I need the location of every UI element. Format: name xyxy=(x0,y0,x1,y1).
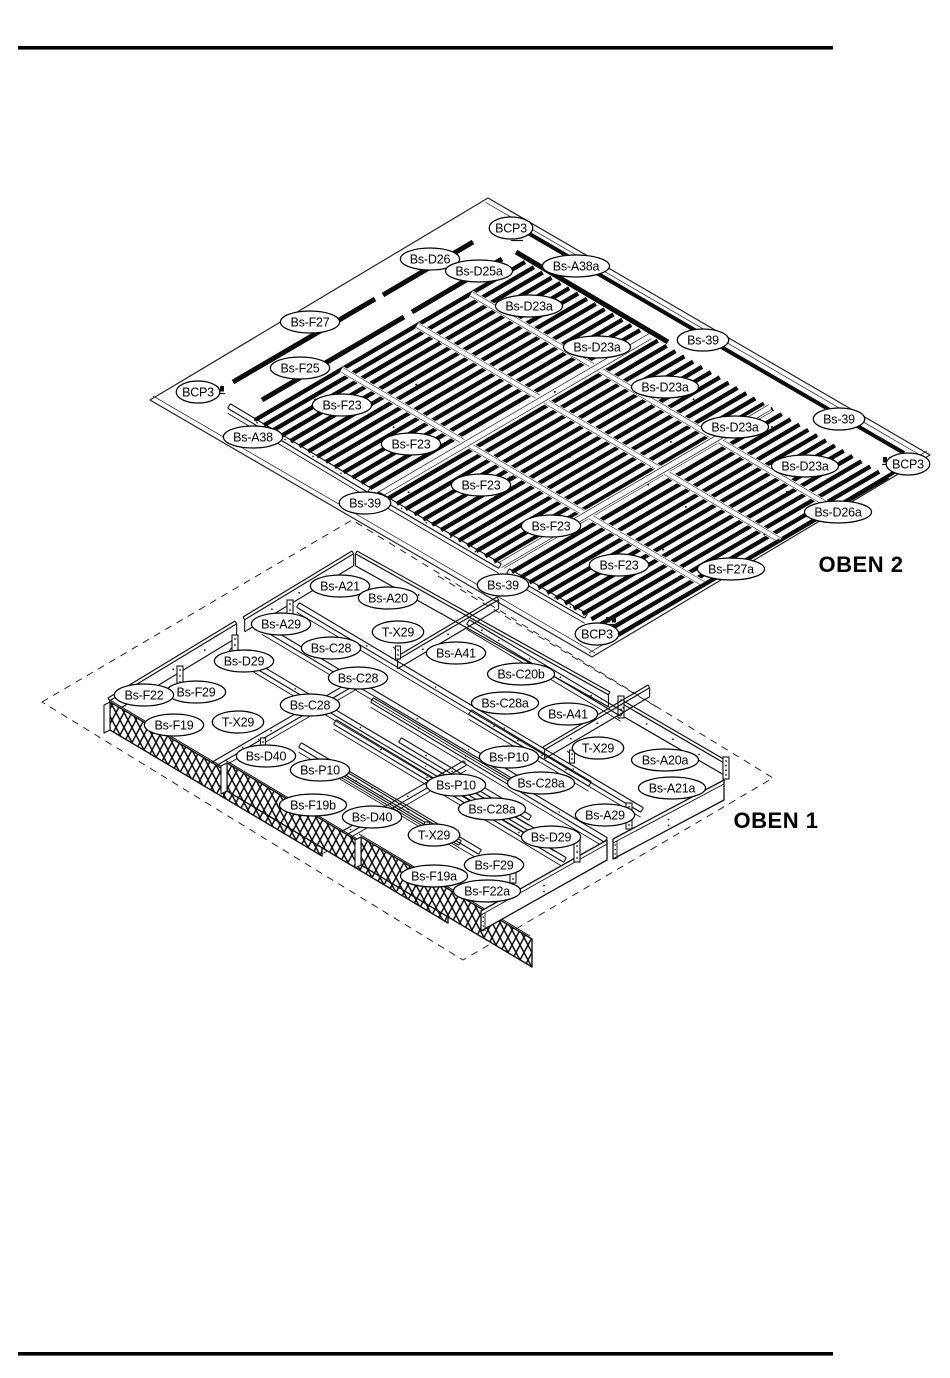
part-label-text: Bs-A29 xyxy=(261,617,301,631)
part-label-text: Bs-A20 xyxy=(368,591,408,605)
part-label: Bs-F23 xyxy=(312,394,371,416)
part-label: Bs-C28a xyxy=(472,692,539,714)
part-label-text: Bs-D23a xyxy=(505,299,552,313)
part-label: Bs-F27 xyxy=(280,311,339,333)
part-label: Bs-D25a xyxy=(446,260,513,282)
part-label: Bs-C28a xyxy=(508,772,575,794)
part-label-text: Bs-A38 xyxy=(233,430,273,444)
part-label: Bs-F25 xyxy=(270,357,329,379)
part-label-text: BCP3 xyxy=(495,221,527,235)
part-label: Bs-A41 xyxy=(538,703,597,725)
part-label: Bs-F29 xyxy=(464,854,523,876)
part-label: Bs-39 xyxy=(677,329,728,351)
part-label: T-X29 xyxy=(408,824,459,846)
assembly-diagram: BCP3Bs-D26Bs-D25aBs-A38aBs-D23aBs-F27Bs-… xyxy=(0,0,950,1378)
part-label-text: Bs-D23a xyxy=(641,380,688,394)
part-label-text: T-X29 xyxy=(222,715,255,729)
part-label-text: Bs-F23 xyxy=(599,558,638,572)
part-label: Bs-A38a xyxy=(543,255,610,277)
part-label: Bs-P10 xyxy=(479,746,538,768)
part-label: Bs-D29 xyxy=(521,826,580,848)
part-label-text: Bs-39 xyxy=(487,578,519,592)
part-label-text: Bs-39 xyxy=(687,333,719,347)
part-label: T-X29 xyxy=(212,711,263,733)
top-rule xyxy=(18,46,833,50)
part-label: Bs-D29 xyxy=(214,650,273,672)
part-label-text: Bs-F23 xyxy=(531,519,570,533)
part-label-text: BCP3 xyxy=(581,627,613,641)
part-label: Bs-P10 xyxy=(290,759,349,781)
part-label: Bs-P10 xyxy=(426,774,485,796)
part-label: Bs-A29 xyxy=(575,804,634,826)
part-label: BCP3 xyxy=(176,381,220,403)
part-label: Bs-F23 xyxy=(381,433,440,455)
part-label: Bs-A21a xyxy=(639,777,706,799)
part-label-text: Bs-D23a xyxy=(781,459,828,473)
part-label: Bs-A29 xyxy=(251,613,310,635)
part-label: Bs-D23a xyxy=(496,295,563,317)
part-label: Bs-A20 xyxy=(358,587,417,609)
part-label-text: Bs-F23 xyxy=(461,478,500,492)
part-label: Bs-D23a xyxy=(702,416,769,438)
manual-page: BCP3Bs-D26Bs-D25aBs-A38aBs-D23aBs-F27Bs-… xyxy=(0,0,950,1378)
part-label: Bs-F29 xyxy=(166,681,225,703)
part-label-text: Bs-F19b xyxy=(290,798,336,812)
part-label: Bs-39 xyxy=(813,408,864,430)
part-label-text: Bs-C28a xyxy=(481,696,528,710)
part-label: Bs-39 xyxy=(477,574,528,596)
part-label-text: Bs-F22 xyxy=(124,688,163,702)
part-label-text: Bs-A21 xyxy=(320,579,360,593)
part-label: Bs-A38 xyxy=(223,426,282,448)
part-label: Bs-F23 xyxy=(451,474,510,496)
part-label-text: T-X29 xyxy=(382,625,415,639)
part-label-text: BCP3 xyxy=(892,457,924,471)
part-label-text: Bs-39 xyxy=(349,496,381,510)
part-label-text: Bs-D29 xyxy=(224,654,265,668)
part-label-text: Bs-P10 xyxy=(300,763,340,777)
assembly-title-oben1: OBEN 1 xyxy=(734,808,819,833)
part-label: Bs-F22 xyxy=(114,684,173,706)
part-label: Bs-F23 xyxy=(589,554,648,576)
part-label-text: Bs-F22a xyxy=(464,884,510,898)
part-label-text: Bs-F19a xyxy=(411,869,457,883)
part-label-text: Bs-F23 xyxy=(322,398,361,412)
part-label-text: Bs-C28 xyxy=(338,671,379,685)
part-label: BCP3 xyxy=(886,453,930,475)
part-label: Bs-F19b xyxy=(280,794,347,816)
part-label-text: Bs-P10 xyxy=(436,778,476,792)
part-label-text: Bs-D26a xyxy=(814,505,861,519)
part-label-text: Bs-F25 xyxy=(280,361,319,375)
part-label-text: Bs-D23a xyxy=(573,340,620,354)
part-label-text: Bs-C28 xyxy=(311,641,352,655)
part-label: BCP3 xyxy=(489,217,533,239)
part-label-text: Bs-C20b xyxy=(497,667,544,681)
part-label: Bs-F19a xyxy=(401,865,468,887)
part-label-text: Bs-F23 xyxy=(391,437,430,451)
part-label-text: Bs-D40 xyxy=(246,749,287,763)
part-label: Bs-F27a xyxy=(698,558,765,580)
part-label-text: Bs-C28a xyxy=(468,802,515,816)
part-label: Bs-A41 xyxy=(426,642,485,664)
part-label: Bs-D23a xyxy=(564,336,631,358)
part-label-text: Bs-D26 xyxy=(410,252,451,266)
bottom-rule xyxy=(18,1352,833,1356)
part-label: Bs-D23a xyxy=(772,455,839,477)
part-label: Bs-C28a xyxy=(459,798,526,820)
part-label: Bs-C20b xyxy=(488,663,555,685)
part-label-text: Bs-A41 xyxy=(436,646,476,660)
assembly-title-oben2: OBEN 2 xyxy=(819,552,904,577)
part-label: Bs-C28 xyxy=(328,667,387,689)
part-label: Bs-F22a xyxy=(454,880,521,902)
part-label: Bs-C28 xyxy=(301,637,360,659)
part-label: Bs-F19 xyxy=(144,714,203,736)
part-label-text: Bs-D29 xyxy=(531,830,572,844)
part-label: Bs-F23 xyxy=(521,515,580,537)
part-label-text: Bs-P10 xyxy=(489,750,529,764)
part-label-text: Bs-C28 xyxy=(290,698,331,712)
part-label-text: Bs-A29 xyxy=(585,808,625,822)
part-label: T-X29 xyxy=(572,737,623,759)
part-label-text: Bs-F27a xyxy=(708,562,754,576)
part-label-text: T-X29 xyxy=(582,741,615,755)
part-label: Bs-D40 xyxy=(236,745,295,767)
part-label: Bs-A20a xyxy=(632,749,699,771)
part-label-text: Bs-F19 xyxy=(154,718,193,732)
part-label-text: Bs-D25a xyxy=(455,264,502,278)
part-label-text: Bs-D23a xyxy=(711,420,758,434)
part-label-text: Bs-A41 xyxy=(548,707,588,721)
part-label: T-X29 xyxy=(372,621,423,643)
part-label: Bs-D23a xyxy=(632,376,699,398)
part-label-text: T-X29 xyxy=(418,828,451,842)
part-label: Bs-D26a xyxy=(805,501,872,523)
part-label-text: Bs-F29 xyxy=(474,858,513,872)
part-label-text: Bs-F27 xyxy=(290,315,329,329)
part-label-text: Bs-C28a xyxy=(517,776,564,790)
part-label: Bs-39 xyxy=(339,492,390,514)
part-label-text: BCP3 xyxy=(182,385,214,399)
part-label-text: Bs-A38a xyxy=(553,259,600,273)
part-label-text: Bs-39 xyxy=(823,412,855,426)
part-label-text: Bs-A21a xyxy=(649,781,696,795)
part-label: BCP3 xyxy=(575,623,619,645)
part-label: Bs-D40 xyxy=(342,806,401,828)
part-label-text: Bs-F29 xyxy=(176,685,215,699)
part-label: Bs-C28 xyxy=(280,694,339,716)
part-label-text: Bs-D40 xyxy=(352,810,393,824)
part-label-text: Bs-A20a xyxy=(642,753,689,767)
